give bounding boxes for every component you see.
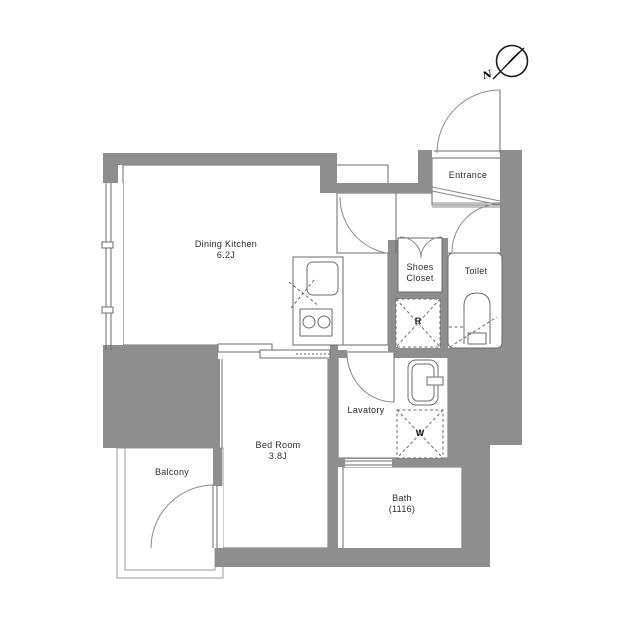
balcony-name: Balcony xyxy=(122,467,222,478)
stove xyxy=(300,309,332,336)
toilet-name: Toilet xyxy=(446,266,506,277)
label-balcony: Balcony xyxy=(122,467,222,478)
lavatory-name: Lavatory xyxy=(326,405,406,416)
floor-plan-page: Dining Kitchen 6.2J Bed Room 3.8J Balcon… xyxy=(0,0,640,640)
refrigerator-marker: R xyxy=(410,316,426,326)
floor-plan-drawing xyxy=(0,0,640,640)
compass-icon xyxy=(493,46,528,80)
entrance-name: Entrance xyxy=(418,170,518,181)
washing-machine-letter: W xyxy=(416,428,425,438)
sink xyxy=(307,262,338,295)
washbasin xyxy=(408,360,443,405)
kitchen-counter xyxy=(289,257,343,345)
refrigerator-letter: R xyxy=(415,316,422,326)
shoes-closet-line2: Closet xyxy=(391,273,449,284)
bed-room-name: Bed Room xyxy=(198,440,358,451)
label-bed-room: Bed Room 3.8J xyxy=(198,440,358,461)
bed-room-size: 3.8J xyxy=(198,451,358,462)
label-dining-kitchen: Dining Kitchen 6.2J xyxy=(146,239,306,260)
label-entrance: Entrance xyxy=(418,170,518,181)
label-lavatory: Lavatory xyxy=(326,405,406,416)
bath-size: (1116) xyxy=(362,504,442,515)
entrance-door-swing xyxy=(437,90,500,153)
label-shoes-closet: Shoes Closet xyxy=(391,262,449,283)
dining-kitchen-size: 6.2J xyxy=(146,250,306,261)
washing-machine-marker: W xyxy=(412,428,428,438)
shoes-closet-line1: Shoes xyxy=(391,262,449,273)
bath-name: Bath xyxy=(362,493,442,504)
label-toilet: Toilet xyxy=(446,266,506,277)
label-bath: Bath (1116) xyxy=(362,493,442,514)
dining-kitchen-name: Dining Kitchen xyxy=(146,239,306,250)
